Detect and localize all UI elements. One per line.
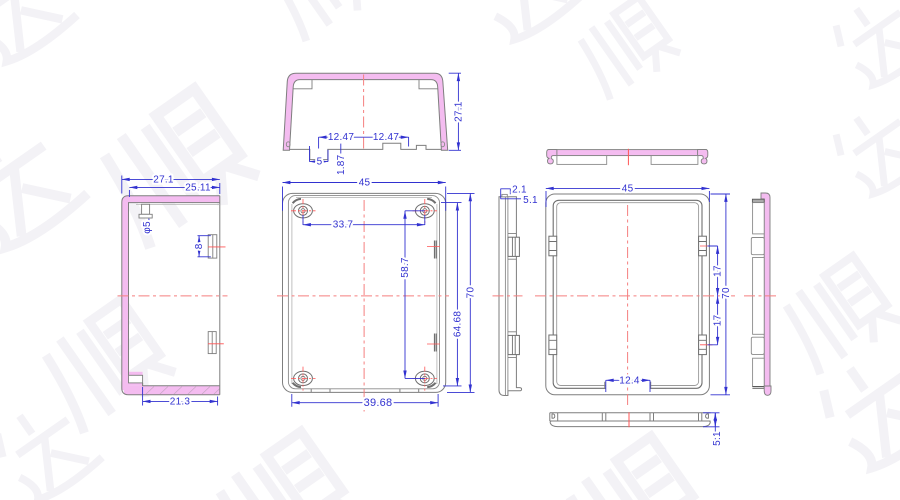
svg-text:45: 45 [622,183,634,194]
svg-text:1.87: 1.87 [336,154,347,175]
svg-text:17: 17 [713,314,724,326]
svg-text:17: 17 [713,265,724,277]
svg-text:12.47: 12.47 [373,132,399,143]
svg-text:70: 70 [721,287,732,299]
svg-text:5.1: 5.1 [712,431,723,446]
svg-text:12.47: 12.47 [328,132,354,143]
svg-text:27.1: 27.1 [453,101,464,122]
svg-text:33.7: 33.7 [333,220,354,231]
svg-text:5.1: 5.1 [523,195,538,206]
svg-text:21.3: 21.3 [170,396,191,407]
svg-text:64.68: 64.68 [452,311,463,337]
svg-text:5: 5 [317,157,323,168]
svg-text:39.68: 39.68 [364,397,393,409]
svg-text:58.7: 58.7 [400,257,411,278]
svg-text:25.11: 25.11 [185,182,211,193]
svg-text:70: 70 [465,287,476,299]
svg-text:φ5: φ5 [142,221,153,234]
svg-text:27.1: 27.1 [153,174,174,185]
svg-text:8: 8 [194,243,205,249]
svg-text:12.4: 12.4 [619,376,640,387]
svg-text:45: 45 [359,178,371,189]
